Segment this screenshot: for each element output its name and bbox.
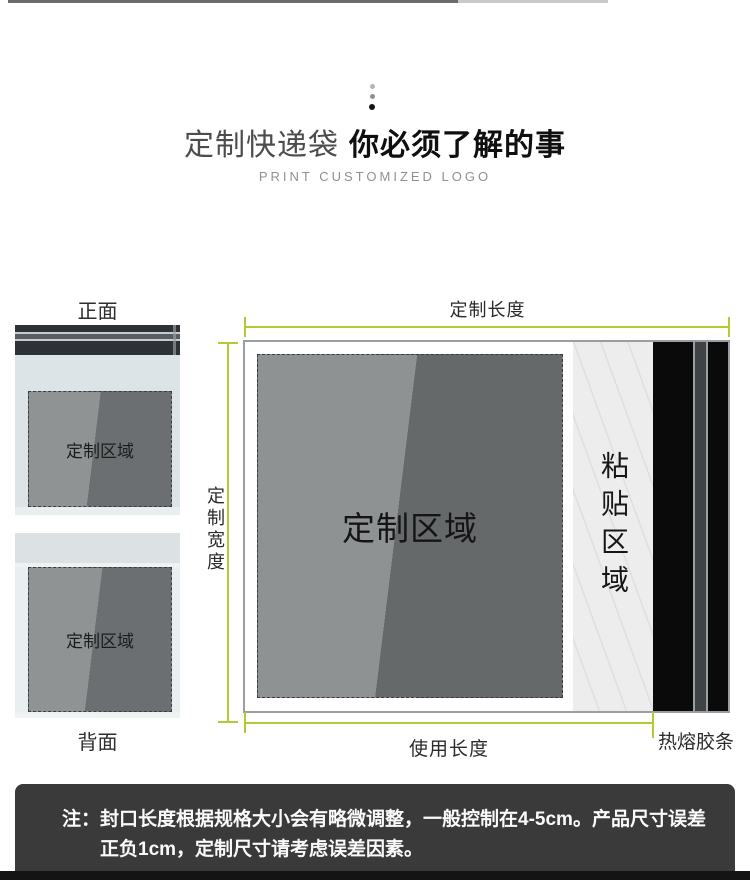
note-prefix: 注：	[62, 805, 100, 835]
custom-width-label: 定制宽度	[202, 486, 228, 574]
back-bag-preview: 定制区域	[15, 533, 180, 718]
page-title-bold: 你必须了解的事	[349, 129, 566, 162]
bottom-section-divider	[0, 871, 750, 880]
custom-width-dimension-line	[227, 343, 229, 723]
page-title: 定制快递袋你必须了解的事	[0, 127, 750, 165]
hot-melt-strip-label: 热熔胶条	[658, 727, 734, 754]
hot-melt-black-band	[653, 342, 728, 711]
dimension-tick	[728, 317, 730, 337]
note-text: 封口长度根据规格大小会有略微调整，一般控制在4-5cm。产品尺寸误差 正负1cm…	[100, 805, 706, 865]
back-view-label: 背面	[15, 726, 180, 755]
back-custom-area: 定制区域	[28, 567, 172, 712]
front-view-label: 正面	[15, 295, 180, 324]
glue-area-strip: 粘贴区域	[573, 342, 653, 711]
ellipsis-dots-icon	[369, 84, 375, 110]
usage-length-dimension-line	[245, 722, 653, 724]
front-bag-preview: 定制区域	[15, 325, 180, 515]
note-line-1: 封口长度根据规格大小会有略微调整，一般控制在4-5cm。产品尺寸误差	[100, 805, 706, 835]
dimension-tick	[244, 317, 246, 337]
top-crop-artifact-line	[8, 0, 608, 3]
dimension-tick	[244, 712, 246, 733]
note-panel: 注： 封口长度根据规格大小会有略微调整，一般控制在4-5cm。产品尺寸误差 正负…	[15, 784, 735, 871]
dimension-tick	[218, 721, 238, 723]
glue-area-label: 粘贴区域	[593, 451, 633, 603]
usage-length-label: 使用长度	[245, 734, 653, 761]
bag-layout-diagram: 定制区域 粘贴区域	[243, 340, 730, 713]
dimension-tick	[218, 342, 238, 344]
main-custom-area: 定制区域	[257, 354, 563, 698]
note-line-2: 正负1cm，定制尺寸请考虑误差因素。	[100, 835, 706, 865]
page-subtitle: PRINT CUSTOMIZED LOGO	[0, 169, 750, 184]
front-custom-area: 定制区域	[28, 391, 172, 507]
custom-length-label: 定制长度	[245, 296, 730, 322]
custom-length-dimension-line	[245, 326, 730, 328]
front-flap-edge-highlight	[173, 325, 176, 355]
product-infographic-page: 定制快递袋你必须了解的事 PRINT CUSTOMIZED LOGO 正面 定制…	[0, 0, 750, 880]
page-title-regular: 定制快递袋	[184, 129, 339, 162]
